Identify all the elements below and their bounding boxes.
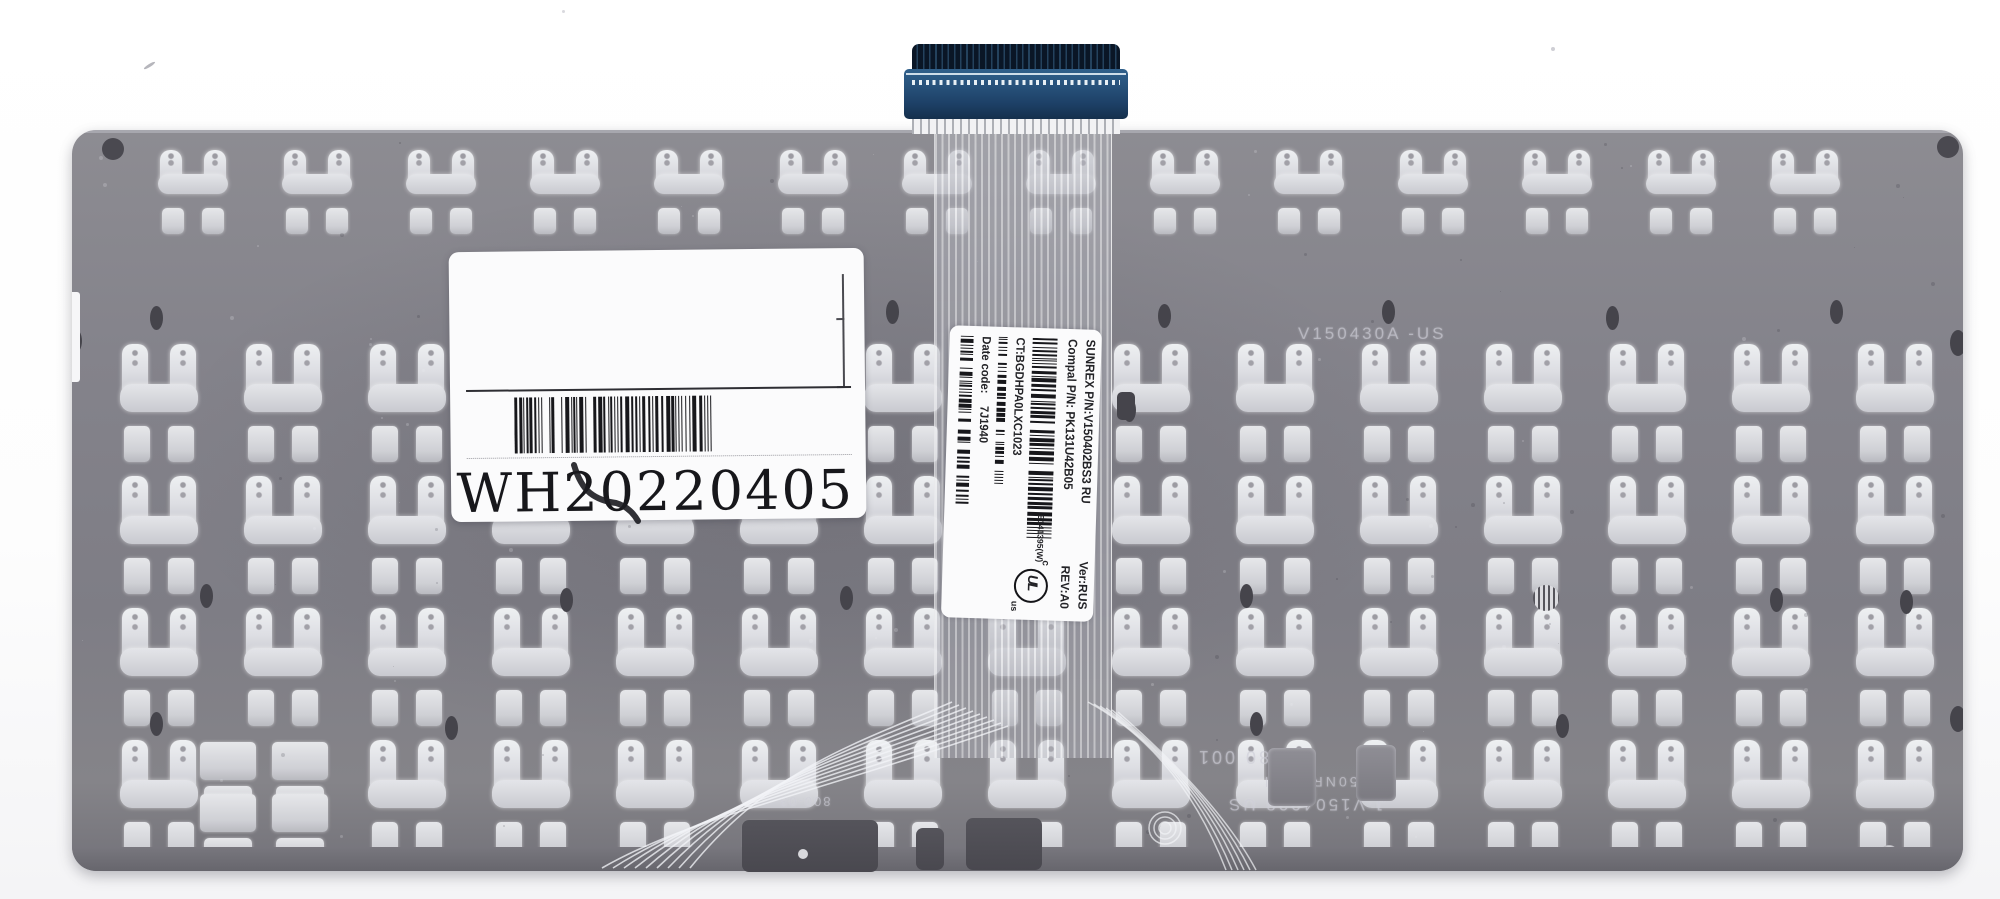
latch-slot (1904, 822, 1930, 858)
rivet-hole (1663, 851, 1681, 869)
latch-slot (1488, 822, 1514, 858)
clip-base (1360, 516, 1438, 544)
clip-base (1608, 648, 1686, 676)
latch-slot (1780, 822, 1806, 858)
latch-slot (744, 558, 770, 594)
version-text: Ver:RUS (1075, 561, 1091, 609)
plate-texture-speck (1254, 150, 1257, 153)
plate-texture-speck (1621, 167, 1623, 169)
ul-letters: UL (1025, 575, 1041, 590)
latch-slot (496, 822, 522, 858)
plate-texture-speck (1795, 478, 1798, 481)
plate-texture-speck (230, 316, 234, 320)
plate-texture-speck (1854, 247, 1855, 248)
plate-texture-speck (1570, 510, 1574, 514)
key-clip-module (1856, 476, 1934, 614)
latch-slot (1650, 208, 1672, 234)
latch-slot (1656, 822, 1682, 858)
latch-slot (1488, 558, 1514, 594)
ul-circle: UL (1013, 568, 1048, 603)
key-clip-module (368, 476, 446, 614)
flex-circuit-traces (520, 700, 1280, 875)
clip-base (778, 174, 848, 194)
latch-slot (1408, 822, 1434, 858)
clip-base (244, 648, 322, 676)
latch-slot (1904, 558, 1930, 594)
clip-base (368, 780, 446, 808)
plate-texture-speck (1151, 683, 1154, 686)
clip-base (1608, 516, 1686, 544)
plate-hole (1556, 714, 1569, 738)
label-divider (842, 274, 845, 388)
plate-texture-speck (809, 639, 813, 643)
latch-slot (1526, 208, 1548, 234)
clip-base (1608, 780, 1686, 808)
arrow-clip (272, 742, 328, 780)
latch-slot (788, 558, 814, 594)
latch-slot (1612, 426, 1638, 462)
latch-slot (1532, 822, 1558, 858)
key-clip-module (1236, 344, 1314, 482)
plate-texture-speck (1931, 282, 1935, 286)
plate-texture-speck (1429, 524, 1433, 528)
clip-base (1522, 174, 1592, 194)
latch-slot (1736, 822, 1762, 858)
plate-texture-speck (406, 423, 409, 426)
date-code-text: WH20220405 (456, 458, 854, 525)
plate-texture-speck (1460, 259, 1462, 261)
dust-speck (143, 61, 156, 70)
latch-slot (168, 426, 194, 462)
clip-base (492, 648, 570, 676)
clip-base (1732, 780, 1810, 808)
clip-base (1856, 648, 1934, 676)
clip-base (530, 174, 600, 194)
plate-texture-speck (1773, 818, 1777, 822)
plate-texture-speck (1503, 502, 1505, 504)
latch-slot (292, 426, 318, 462)
key-clip-module (1608, 476, 1686, 614)
ribbon-connector (904, 69, 1128, 119)
clip-base (1236, 648, 1314, 676)
label-rule (466, 386, 851, 392)
latch-slot (124, 822, 150, 858)
plate-texture-speck (1248, 194, 1250, 196)
latch-slot (868, 426, 894, 462)
key-clip-module (530, 150, 600, 254)
latch-slot (1408, 426, 1434, 462)
key-clip-module (1150, 150, 1220, 254)
latch-slot (534, 208, 556, 234)
latch-slot (416, 690, 442, 726)
rivet-hole (296, 853, 314, 871)
plate-texture-speck (1742, 337, 1746, 341)
latch-slot (1240, 426, 1266, 462)
latch-slot (372, 558, 398, 594)
latch-slot (1904, 426, 1930, 462)
latch-slot (906, 208, 928, 234)
latch-slot (1860, 558, 1886, 594)
arrow-clip (276, 838, 324, 858)
latch-slot (1612, 558, 1638, 594)
etched-part-number: V150430A -US (1298, 324, 1446, 344)
plate-texture-speck (1613, 746, 1617, 750)
plate-texture-speck (1604, 143, 1607, 146)
clip-base (1732, 384, 1810, 412)
plate-hole (1770, 588, 1783, 612)
latch-slot (292, 690, 318, 726)
latch-slot (1612, 822, 1638, 858)
latch-slot (1532, 426, 1558, 462)
barcode-icon (1026, 338, 1057, 539)
clip-base (1856, 780, 1934, 808)
date-code-line: Date code: 7J1940 (976, 336, 994, 451)
key-clip-module (1856, 740, 1934, 871)
latch-slot (1364, 822, 1390, 858)
plate-hole (1117, 392, 1135, 420)
plate-hole (1900, 590, 1913, 614)
key-clip-module (1484, 608, 1562, 746)
clip-base (1770, 174, 1840, 194)
latch-slot (1860, 822, 1886, 858)
plate-texture-speck (435, 528, 438, 531)
plate-texture-speck (1215, 655, 1219, 659)
plate-texture-speck (1318, 358, 1321, 361)
plate-hole (445, 716, 458, 740)
screw-hole (1937, 136, 1959, 158)
latch-slot (1612, 690, 1638, 726)
latch-slot (1364, 690, 1390, 726)
clip-base (120, 780, 198, 808)
key-clip-module (1732, 740, 1810, 871)
clip-base (1484, 516, 1562, 544)
rivet-hole (188, 852, 206, 870)
latch-slot (1780, 690, 1806, 726)
plate-texture-speck (1336, 578, 1338, 580)
key-clip-module (1608, 608, 1686, 746)
clip-base (654, 174, 724, 194)
key-clip-module (1484, 344, 1562, 482)
plate-hole (1606, 306, 1619, 330)
connector-tab (966, 818, 1042, 870)
plate-texture-speck (1471, 503, 1475, 507)
rivet-hole (1880, 845, 1898, 863)
plate-texture-speck (1223, 570, 1226, 573)
key-clip-module (282, 150, 352, 254)
connector-tab (916, 828, 944, 870)
mounting-clip (1356, 745, 1396, 801)
arrow-clip (272, 794, 328, 832)
plate-texture-speck (1549, 623, 1551, 625)
key-clip-module (1856, 608, 1934, 746)
clip-base (864, 384, 942, 412)
ink-scribble (560, 455, 650, 535)
key-clip-module (778, 150, 848, 254)
plate-hole (886, 300, 899, 324)
clip-base (1608, 384, 1686, 412)
key-clip-module (120, 740, 198, 871)
latch-slot (698, 208, 720, 234)
key-clip-module (368, 344, 446, 482)
latch-slot (1532, 690, 1558, 726)
barcode-icon (994, 337, 1008, 485)
key-clip-module (1360, 476, 1438, 614)
clip-base (1732, 648, 1810, 676)
latch-slot (1814, 208, 1836, 234)
plate-texture-speck (99, 156, 103, 160)
latch-slot (1566, 208, 1588, 234)
latch-slot (1736, 558, 1762, 594)
latch-slot (248, 426, 274, 462)
latch-slot (1904, 690, 1930, 726)
latch-slot (1656, 426, 1682, 462)
clip-base (244, 384, 322, 412)
plate-texture-speck (1941, 514, 1945, 518)
key-clip-module (368, 608, 446, 746)
plate-hole (560, 588, 573, 612)
latch-slot (372, 426, 398, 462)
edge-hole (1950, 330, 1963, 356)
clip-base (158, 174, 228, 194)
key-clip-module (864, 344, 942, 482)
clip-base (1112, 516, 1190, 544)
dust-speck (562, 10, 565, 13)
clip-base (864, 648, 942, 676)
rivet-hole (88, 852, 106, 870)
latch-slot (124, 690, 150, 726)
clip-base (864, 516, 942, 544)
clip-base (1732, 516, 1810, 544)
clip-base (1856, 516, 1934, 544)
plate-texture-speck (1690, 586, 1693, 589)
label-tick (836, 318, 844, 320)
rivet-hole (1470, 853, 1488, 871)
latch-slot (1154, 208, 1176, 234)
plate-hole (200, 584, 213, 608)
plate-texture-speck (82, 640, 83, 641)
plate-texture-speck (1777, 329, 1780, 332)
barcode-icon (955, 336, 973, 506)
key-clip-module (244, 476, 322, 614)
latch-slot (1736, 690, 1762, 726)
latch-slot (658, 208, 680, 234)
clip-base (120, 648, 198, 676)
latch-slot (1780, 426, 1806, 462)
plate-texture-speck (503, 825, 505, 827)
plate-texture-speck (250, 618, 254, 622)
plate-texture-speck (1804, 613, 1808, 617)
latch-slot (782, 208, 804, 234)
plate-texture-speck (1346, 816, 1349, 819)
plate-texture-speck (1415, 836, 1417, 838)
key-clip-module (1274, 150, 1344, 254)
latch-slot (574, 208, 596, 234)
clip-base (1236, 384, 1314, 412)
rivet-hole (1777, 849, 1795, 867)
screw-hole (102, 138, 124, 160)
latch-slot (1488, 426, 1514, 462)
latch-slot (1402, 208, 1424, 234)
date-sticker: WH20220405 (449, 248, 867, 522)
plate-texture-speck (1903, 197, 1904, 198)
latch-slot (1284, 558, 1310, 594)
latch-slot (410, 208, 432, 234)
arrow-clip (200, 742, 256, 780)
key-clip-module (406, 150, 476, 254)
latch-slot (1408, 690, 1434, 726)
clip-base (1360, 384, 1438, 412)
plate-texture-speck (1719, 161, 1720, 162)
plate-texture-speck (1455, 526, 1457, 528)
latch-slot (1488, 690, 1514, 726)
dust-speck (1551, 47, 1555, 51)
plate-hole (1830, 300, 1843, 324)
clip-base (120, 384, 198, 412)
plate-texture-speck (417, 315, 420, 318)
plate-texture-speck (1630, 165, 1632, 167)
latch-slot (1656, 690, 1682, 726)
key-clip-module (120, 476, 198, 614)
clip-base (740, 648, 818, 676)
key-clip-module (244, 608, 322, 746)
edge-hole (1950, 706, 1963, 732)
key-clip-module (1732, 608, 1810, 746)
latch-slot (292, 558, 318, 594)
plate-hole (1240, 584, 1253, 608)
clip-base (368, 648, 446, 676)
clip-base (1484, 384, 1562, 412)
latch-slot (1284, 822, 1310, 858)
key-clip-module (158, 150, 228, 254)
clip-base (1398, 174, 1468, 194)
latch-slot (124, 558, 150, 594)
revision-text: REV:A0 (1057, 565, 1072, 609)
plate-texture-speck (1896, 184, 1900, 188)
key-clip-module (1398, 150, 1468, 254)
plate-hole (150, 306, 163, 330)
plate-texture-speck (279, 477, 282, 480)
latch-slot (248, 558, 274, 594)
latch-slot (664, 558, 690, 594)
latch-slot (1284, 690, 1310, 726)
plate-hole (1158, 304, 1171, 328)
latch-slot (1690, 208, 1712, 234)
latch-slot (1116, 426, 1142, 462)
clip-base (1856, 384, 1934, 412)
latch-slot (1160, 558, 1186, 594)
latch-slot (1780, 558, 1806, 594)
key-clip-module (1770, 150, 1840, 254)
clip-base (1150, 174, 1220, 194)
plate-texture-speck (1371, 320, 1374, 323)
ul-us-mark: us (1009, 601, 1019, 612)
connector-contacts-icon (912, 44, 1120, 71)
plate-texture-speck (313, 527, 316, 530)
latch-slot (1860, 690, 1886, 726)
plate-hole (840, 586, 853, 610)
clip-base (368, 384, 446, 412)
latch-slot (1364, 426, 1390, 462)
latch-slot (162, 208, 184, 234)
plate-texture-speck (1128, 344, 1131, 347)
keyboard-backplate-photo: V150430A -US 180 001 50NR1-1Al J·V150402… (0, 0, 2000, 899)
latch-slot (1736, 426, 1762, 462)
plate-texture-speck (220, 779, 223, 782)
latch-slot (1656, 558, 1682, 594)
clip-base (1360, 648, 1438, 676)
compal-part-number: Compal P/N: PK131U42B05 (1061, 339, 1080, 501)
latch-slot (868, 558, 894, 594)
latch-slot (168, 558, 194, 594)
latch-slot (496, 558, 522, 594)
edge-notch (1288, 856, 1314, 871)
latch-slot (326, 208, 348, 234)
key-clip-module (1360, 608, 1438, 746)
latch-slot (822, 208, 844, 234)
latch-slot (1318, 208, 1340, 234)
latch-slot (496, 690, 522, 726)
clip-base (616, 648, 694, 676)
key-clip-module (1112, 476, 1190, 614)
key-clip-module (1856, 344, 1934, 482)
clip-base (1236, 516, 1314, 544)
latch-slot (1442, 208, 1464, 234)
key-clip-module (654, 150, 724, 254)
latch-slot (1364, 558, 1390, 594)
clip-base (1112, 648, 1190, 676)
mounting-clip (1268, 748, 1316, 806)
latch-slot (1860, 426, 1886, 462)
barcode-icon (514, 394, 807, 453)
plate-hole (150, 712, 163, 736)
edge-notch (72, 292, 80, 382)
latch-slot (248, 690, 274, 726)
plate-texture-speck (340, 835, 343, 838)
plate-texture-speck (369, 343, 372, 346)
plate-texture-speck (873, 154, 874, 155)
plate-texture-speck (381, 417, 383, 419)
clip-base (1484, 780, 1562, 808)
plate-texture-speck (103, 183, 107, 187)
key-clip-module (1522, 150, 1592, 254)
ul-certification-logo-icon: c UL us (1009, 559, 1051, 612)
clip-base (120, 516, 198, 544)
tab-hole (798, 849, 808, 859)
ul-file-number: E141395(W) (1035, 514, 1046, 562)
latch-slot (372, 690, 398, 726)
striped-vent-hole (1533, 585, 1559, 611)
plate-texture-speck (925, 610, 929, 614)
clip-base (1646, 174, 1716, 194)
ct-code: CT:BGDHPA0LXC1023 (1010, 337, 1028, 465)
sunrex-part-number: SUNREX P/N:V150402BS3 RU (1078, 339, 1098, 516)
plate-texture-speck (257, 245, 259, 247)
latch-slot (1116, 558, 1142, 594)
latch-slot (372, 822, 398, 858)
latch-slot (450, 208, 472, 234)
latch-slot (286, 208, 308, 234)
key-clip-module (244, 344, 322, 482)
key-clip-module (1484, 740, 1562, 871)
latch-slot (416, 822, 442, 858)
latch-slot (168, 690, 194, 726)
latch-slot (168, 822, 194, 858)
latch-slot (416, 558, 442, 594)
plate-texture-speck (370, 338, 372, 340)
manufacturer-sticker: SUNREX P/N:V150402BS3 RU Ver:RUS Compal … (941, 325, 1102, 622)
latch-slot (124, 426, 150, 462)
clip-base (1484, 648, 1562, 676)
